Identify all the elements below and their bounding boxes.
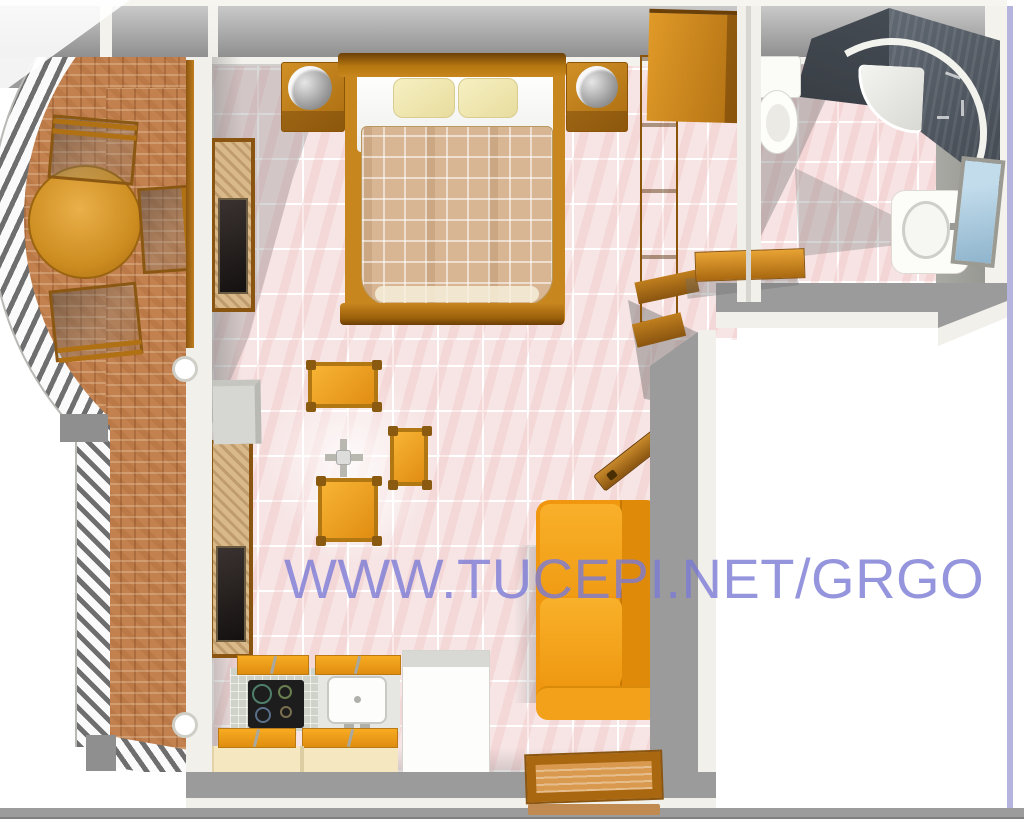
kitchen-appliance [402, 650, 490, 782]
blanket-fringe [375, 286, 539, 302]
basin [902, 201, 950, 259]
dining-stool [308, 362, 378, 408]
gray-appliance [212, 380, 261, 445]
pillow [393, 78, 455, 118]
watermark-text: WWW.TUCEPI.NET/GRGO [284, 546, 984, 606]
balcony [0, 57, 196, 772]
sofa-cushion [540, 598, 622, 686]
bathroom-bottom-lining [716, 312, 966, 328]
railing-post [86, 735, 116, 771]
burner [252, 684, 272, 704]
doormat [526, 752, 662, 803]
appliance-top [403, 651, 489, 667]
door-handle [606, 469, 618, 481]
bedside-lamp [576, 66, 618, 108]
shower-fixture [961, 100, 964, 116]
tv-screen [218, 198, 248, 294]
tv-cabinet [209, 440, 253, 658]
shower-tray [855, 64, 924, 133]
shower-fixture [937, 116, 949, 119]
cabinet-divider [270, 656, 277, 674]
tv-screen [216, 546, 246, 642]
railing-post [60, 414, 108, 442]
sofa [536, 500, 660, 720]
balcony-chair [47, 114, 138, 185]
partition-core [746, 6, 751, 302]
nightstand-drawer [282, 111, 344, 131]
sink-drain [354, 696, 361, 703]
nightstand-drawer [567, 111, 627, 131]
bedside-lamp [288, 66, 332, 110]
doormat-edge [528, 804, 660, 815]
cabinet-top [315, 655, 401, 675]
cabinet-top [237, 655, 309, 675]
tv-cabinet [211, 138, 255, 312]
pillow [458, 78, 518, 118]
sink-handle [344, 724, 354, 728]
sink-handle [360, 724, 370, 728]
cabinet-divider [253, 729, 260, 747]
page-right-border [1007, 6, 1013, 819]
cabinet-divider [354, 656, 361, 674]
cabinet-top [218, 728, 296, 748]
bed-footboard [340, 303, 564, 325]
bed-blanket [361, 126, 553, 306]
burner [280, 706, 292, 718]
wall-lamp [172, 712, 198, 738]
page-bottom-border [0, 808, 1024, 819]
sofa-armrest [536, 686, 660, 720]
wardrobe [647, 9, 744, 123]
burner [278, 685, 292, 699]
cross-table-top [336, 450, 351, 465]
toilet-seat [766, 104, 790, 142]
burner [255, 707, 271, 723]
cabinet-divider [347, 729, 354, 747]
wall-lamp [172, 356, 198, 382]
bed-headboard [338, 53, 566, 77]
dining-stool [318, 478, 378, 542]
balcony-chair [48, 282, 143, 363]
wall-separator [208, 6, 218, 57]
floor-plan: WWW.TUCEPI.NET/GRGO [0, 0, 1024, 819]
straight-railing [75, 425, 110, 747]
dining-stool [390, 428, 428, 486]
cooktop [248, 680, 304, 728]
balcony-door-frame [186, 60, 194, 348]
cabinet-top [302, 728, 398, 748]
